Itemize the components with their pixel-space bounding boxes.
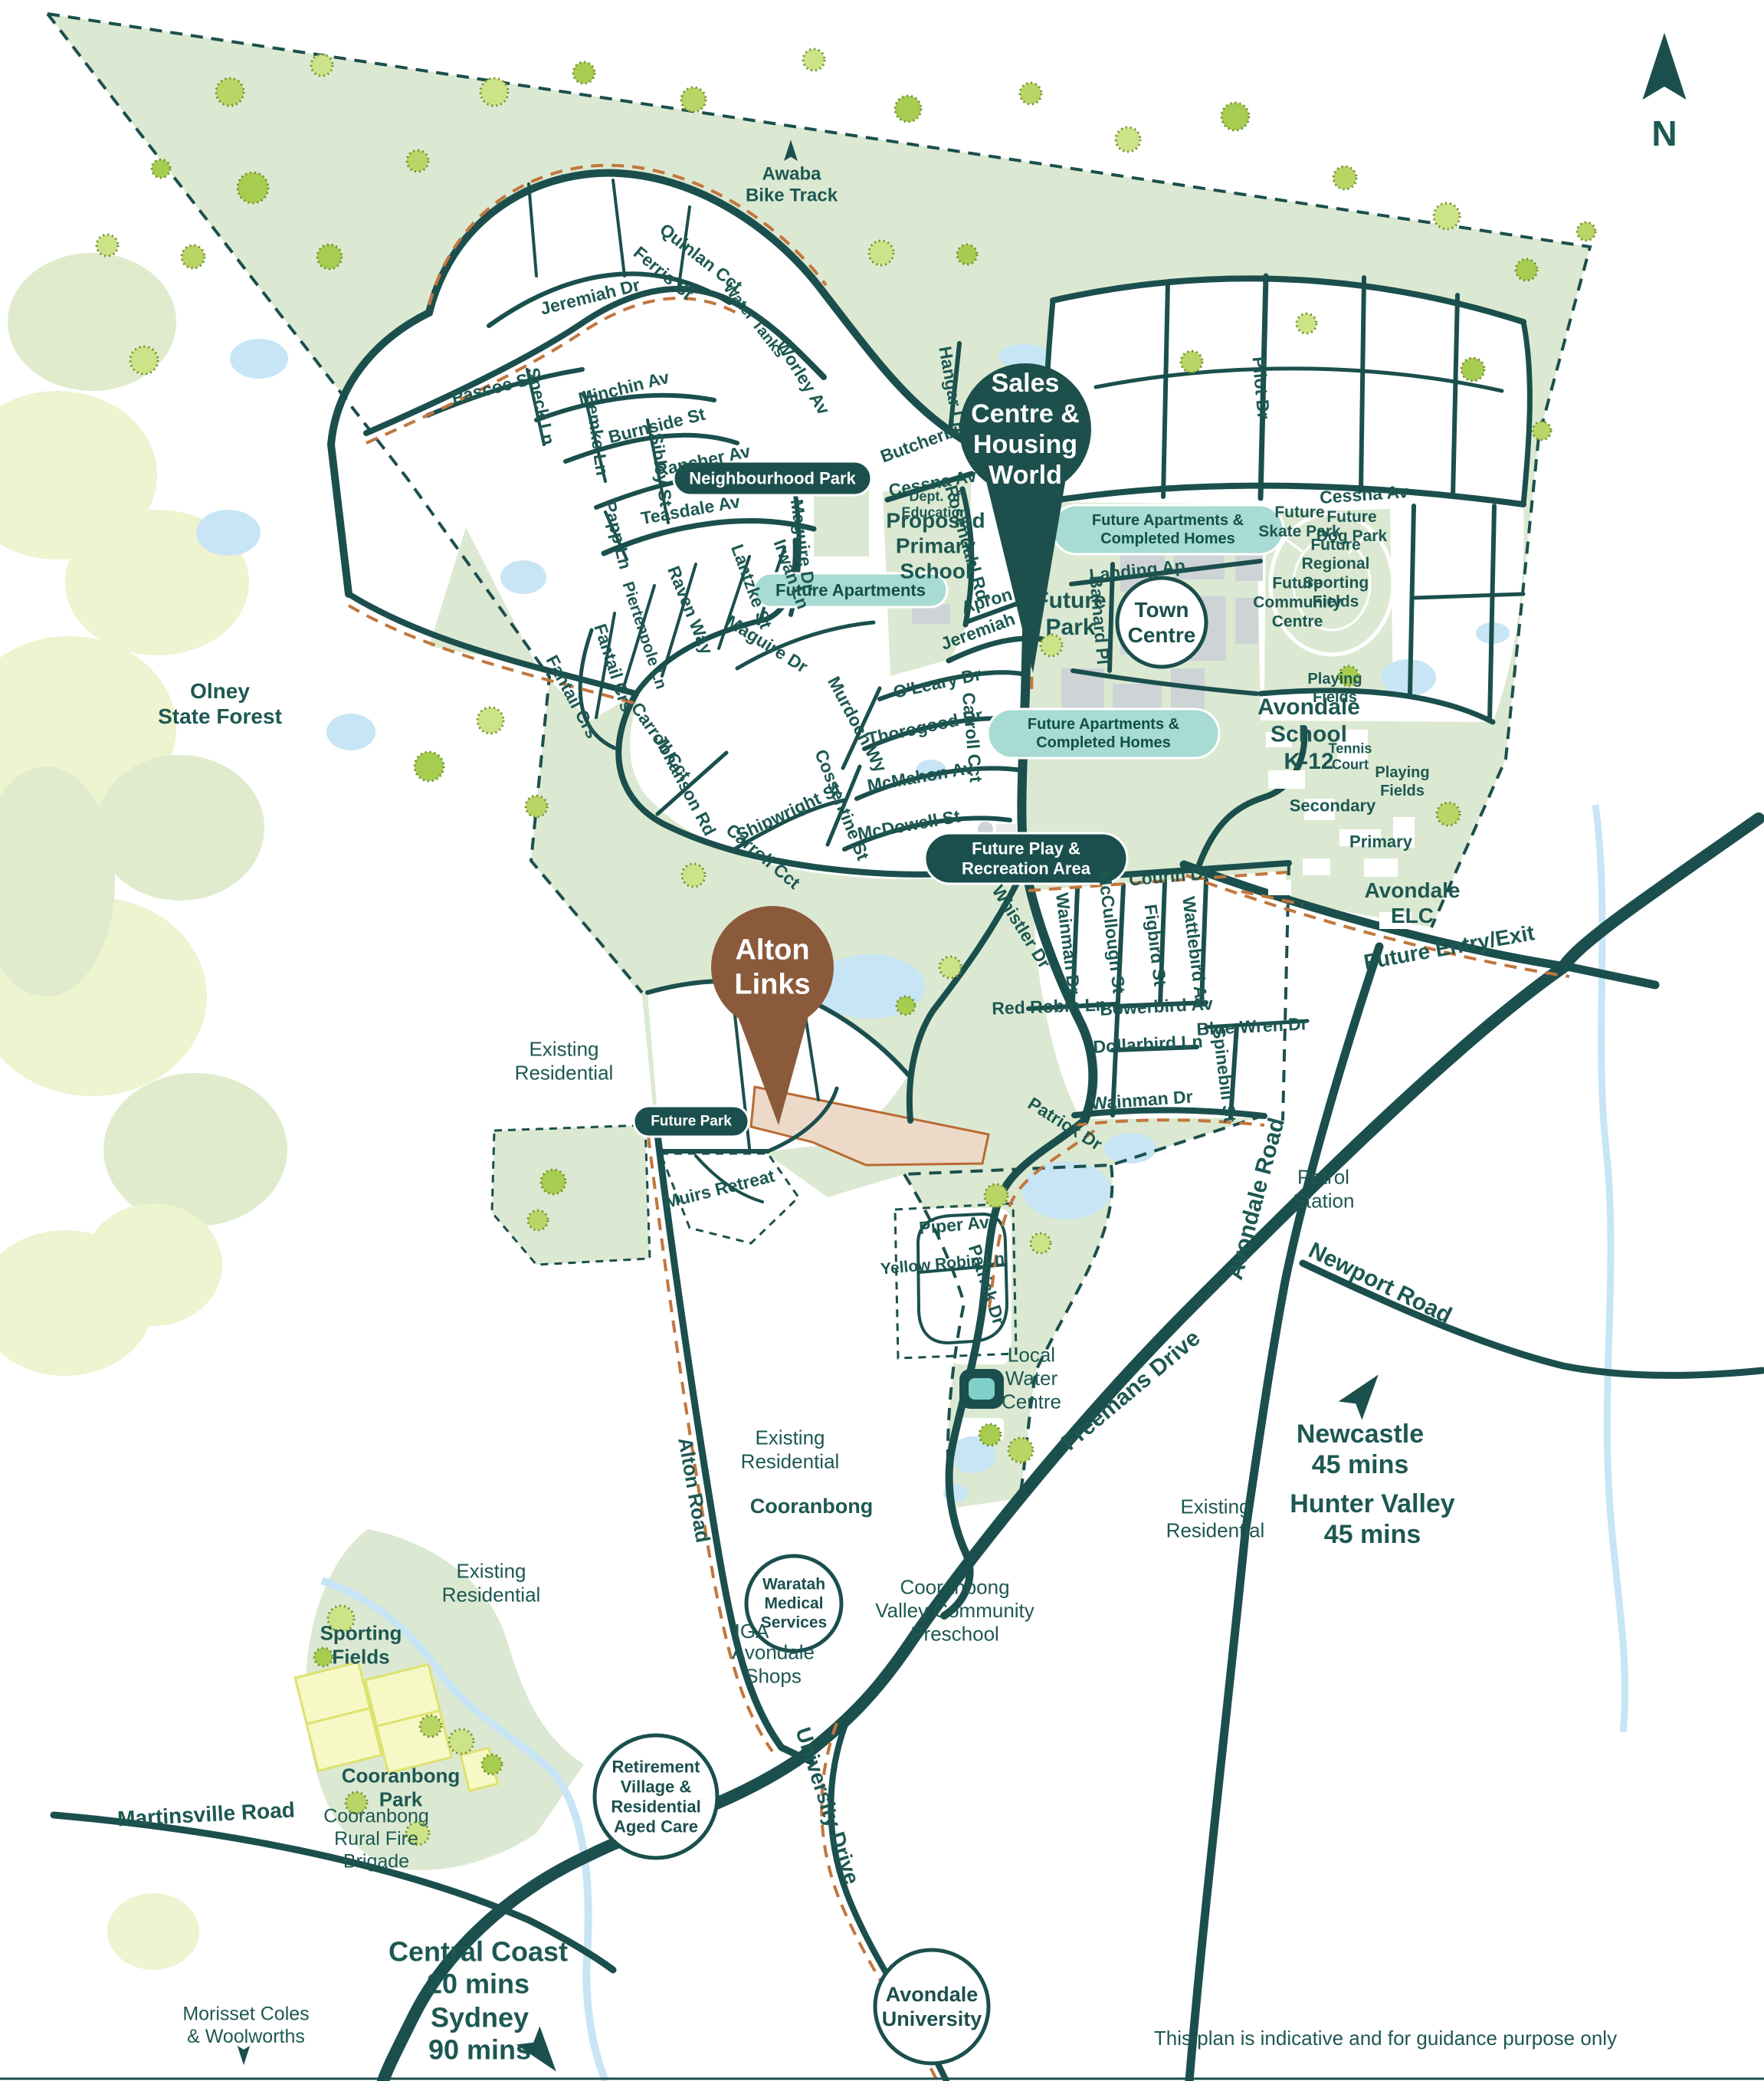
label-morisset-coles-woolworths: Morisset Coles& Woolworths	[182, 2003, 309, 2047]
label-existing-residential: ExistingResidential	[515, 1038, 614, 1085]
label-cooranbong-valley-community-preschool: CooranbongValley CommunityPreschool	[875, 1575, 1034, 1645]
north-arrow	[1643, 33, 1687, 100]
label-avondale-road: Avondale Road	[1222, 1115, 1290, 1282]
label-hunter-valley-45-mins: Hunter Valley45 mins	[1290, 1489, 1455, 1549]
label-existing-residential-2: ExistingResidential	[741, 1426, 840, 1473]
label-proposed-primary-school: ProposedPrimarySchool	[886, 508, 985, 583]
label-newport-road: Newport Road	[1304, 1238, 1455, 1329]
label-existing-residential-4: ExistingResidential	[442, 1560, 541, 1607]
compass-n-label: N	[1651, 113, 1677, 153]
circle-town: TownCentre	[1117, 578, 1206, 667]
pill-future-apartments-completed-homes-2: Future Apartments &Completed Homes	[988, 709, 1219, 758]
label-cooranbong: Cooranbong	[750, 1495, 873, 1518]
label-tennis-court: TennisCourt	[1329, 740, 1372, 772]
pill-text-future-play: Future Play &Recreation Area	[962, 839, 1091, 878]
pill-text-future-apartments: Future Apartments &Completed Homes	[1092, 512, 1244, 547]
label-petrol-station: PetrolStation	[1293, 1166, 1355, 1213]
pill-future-apartments: Future Apartments &Completed Homes	[1052, 505, 1284, 554]
label-iga: IGA	[735, 1620, 769, 1643]
masterplan-map: Neighbourhood ParkFuture ApartmentsFutur…	[0, 0, 1764, 2081]
label-freemans-drive: Freemans Drive	[1057, 1325, 1205, 1456]
label-primary: Primary	[1349, 832, 1413, 852]
circle-retirement: RetirementVillage &ResidentialAged Care	[595, 1735, 717, 1858]
label-playing-fields-2: PlayingFields	[1375, 764, 1429, 799]
label-waratah-medical-services: WaratahMedicalServices	[761, 1576, 827, 1632]
future-park-west-patch	[492, 1125, 650, 1265]
circle-avondale: AvondaleUniversity	[875, 1950, 989, 2063]
label-newcastle-45-mins: Newcastle45 mins	[1297, 1420, 1424, 1479]
label-central-coast-20-mins: Central Coast20 mins	[389, 1935, 568, 1999]
disclaimer-text: This plan is indicative and for guidance…	[1154, 2027, 1617, 2050]
forest-layer	[0, 253, 287, 1970]
label-local-water-centre: LocalWaterCentre	[1002, 1343, 1061, 1413]
newcastle-arrow	[1339, 1365, 1391, 1420]
local-water-centre-icon	[959, 1369, 1004, 1409]
label-red-robin-ln: Red Robin Ln	[992, 994, 1107, 1018]
label-avondale-shops: AvondaleShops	[732, 1641, 815, 1688]
label-avondale-university: AvondaleUniversity	[882, 1983, 982, 2030]
pill-text-neighbourhood-park: Neighbourhood Park	[689, 469, 856, 488]
label-sporting-fields: SportingFields	[320, 1622, 402, 1669]
pill-text-future-park: Future Park	[651, 1114, 732, 1130]
morisset-arrow	[238, 2046, 251, 2065]
label-retirement-village-residential-aged-care: RetirementVillage &ResidentialAged Care	[611, 1758, 700, 1836]
pill-future-park: Future Park	[634, 1106, 749, 1137]
label-sydney-90-mins: Sydney90 mins	[428, 2001, 531, 2065]
label-olney-state-forest: OlneyState Forest	[158, 679, 282, 728]
label-martinsville-road: Martinsville Road	[116, 1797, 295, 1830]
pill-text-future-apartments: Future Apartments &Completed Homes	[1028, 716, 1179, 751]
label-secondary: Secondary	[1290, 796, 1376, 816]
label-existing-residential-3: ExistingResidential	[1166, 1495, 1265, 1542]
